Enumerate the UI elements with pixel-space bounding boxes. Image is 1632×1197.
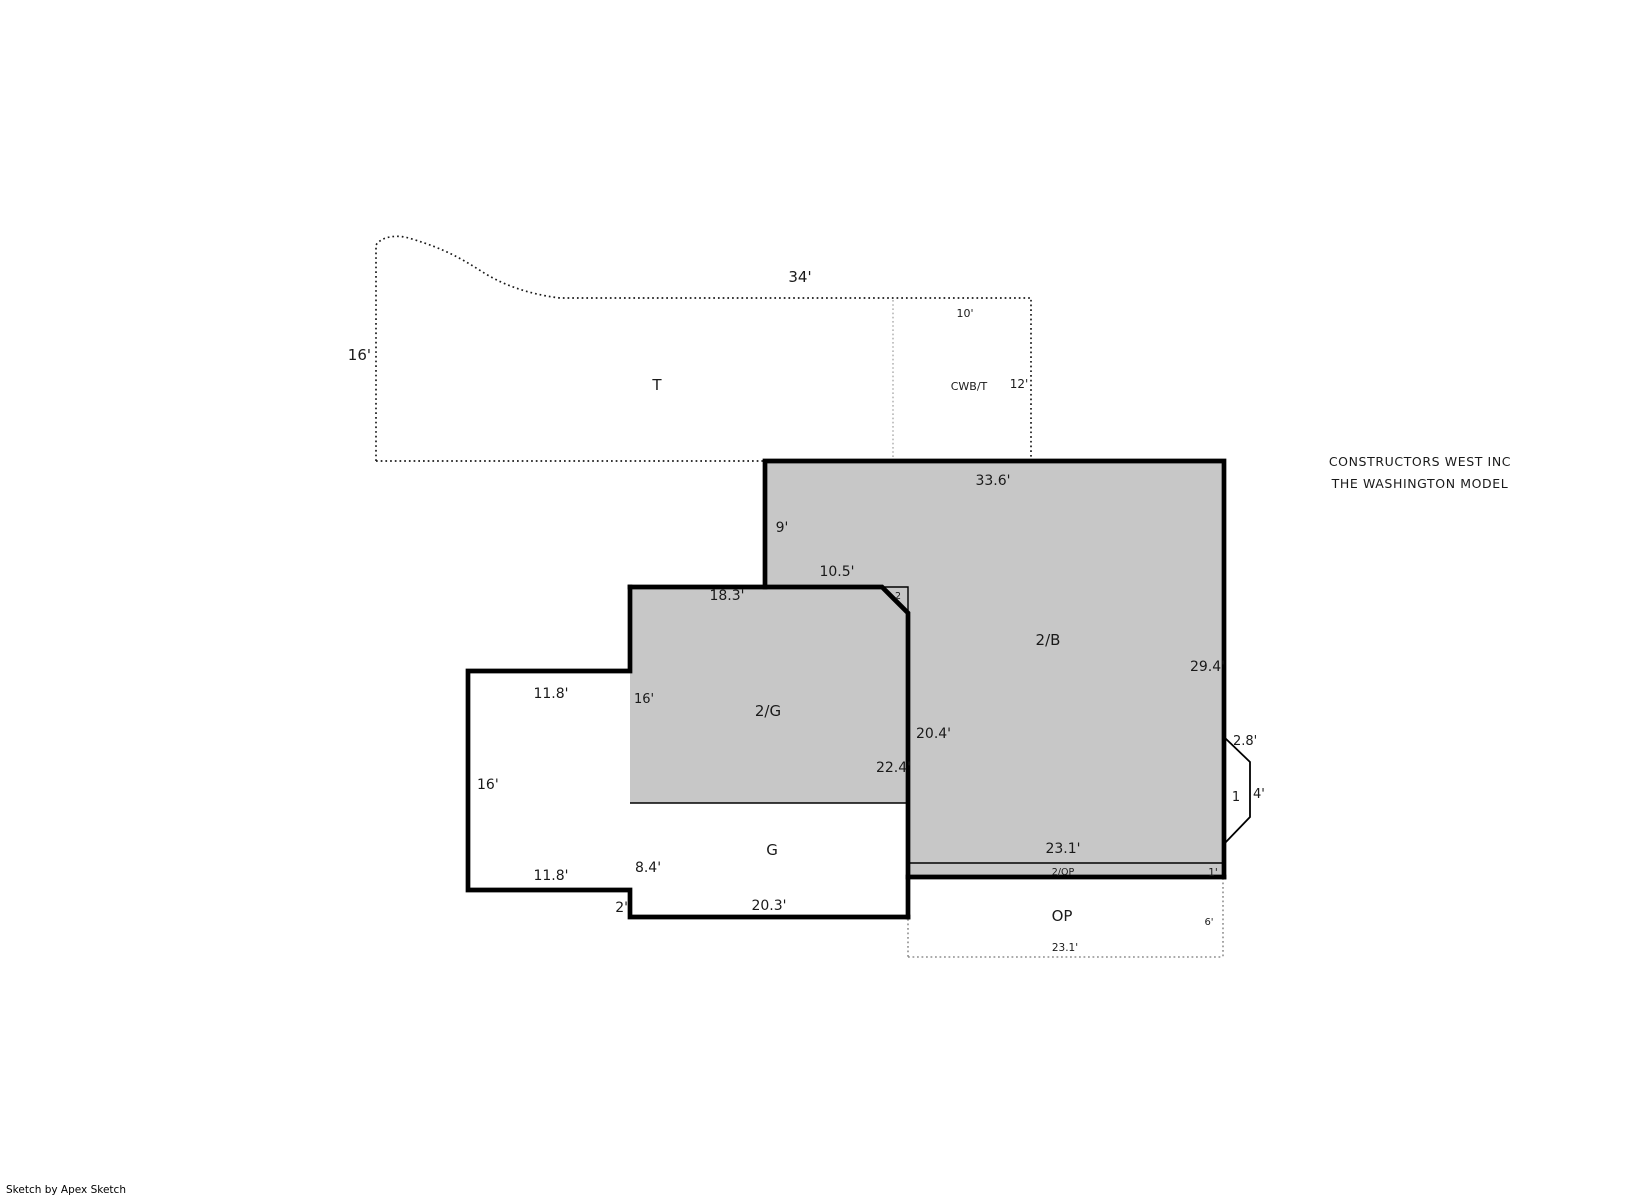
dim-porch-right: 4' bbox=[1253, 787, 1265, 802]
dim-b2-notch-vertical: 9' bbox=[776, 520, 789, 536]
g2-area-fill bbox=[630, 587, 908, 803]
b2-area-label: 2/B bbox=[1036, 631, 1061, 649]
op-area-label: OP bbox=[1052, 907, 1073, 925]
dim-cwbt-right: 12' bbox=[1010, 377, 1029, 391]
dim-g2-top: 18.3' bbox=[709, 588, 744, 604]
corner-triangle-label: 2 bbox=[895, 591, 901, 602]
t-area-label: T bbox=[651, 376, 662, 394]
dim-g-step: 2' bbox=[615, 900, 628, 916]
g-area-label: G bbox=[766, 841, 778, 859]
dim-b2-left: 20.4' bbox=[916, 726, 951, 742]
dim-porch-top: 2.8' bbox=[1233, 734, 1257, 749]
dim-b2-notch-horizontal: 10.5' bbox=[819, 564, 854, 580]
dim-op2-right: 1' bbox=[1208, 867, 1218, 879]
dim-cwbt-top: 10' bbox=[956, 307, 973, 320]
dim-t-left: 16' bbox=[348, 346, 371, 364]
g2-area-label: 2/G bbox=[755, 702, 781, 720]
op2-area-label: 2/OP bbox=[1052, 867, 1075, 878]
t-outline-group bbox=[376, 236, 1031, 461]
dim-g2-height: 16' bbox=[634, 692, 654, 707]
model-name: THE WASHINGTON MODEL bbox=[1331, 476, 1509, 491]
dim-b2-bottom: 23.1' bbox=[1045, 841, 1080, 857]
dim-op-bottom: 23.1' bbox=[1052, 942, 1078, 954]
dim-b2-top: 33.6' bbox=[975, 473, 1010, 489]
area-fills bbox=[630, 461, 1224, 877]
t-labels: 34' 16' T 10' CWB/T 12' bbox=[348, 268, 1029, 394]
cwbt-area-label: CWB/T bbox=[951, 380, 988, 393]
floor-plan-sketch: 34' 16' T 10' CWB/T 12' 33.6' 9' 10.5' 2… bbox=[0, 0, 1632, 1197]
dim-t-top: 34' bbox=[788, 268, 811, 286]
company-title-block: CONSTRUCTORS WEST INC THE WASHINGTON MOD… bbox=[1329, 454, 1511, 491]
dim-g-right: 22.4' bbox=[876, 760, 911, 776]
footer-credit: Sketch by Apex Sketch bbox=[6, 1184, 126, 1196]
porch-labels: 2.8' 1 4' bbox=[1232, 734, 1265, 805]
dim-g-lower-height: 8.4' bbox=[635, 860, 661, 876]
dim-b2-right: 29.4' bbox=[1190, 659, 1225, 675]
dim-g-bottom: 20.3' bbox=[751, 898, 786, 914]
porch-area-label: 1 bbox=[1232, 790, 1240, 805]
company-name: CONSTRUCTORS WEST INC bbox=[1329, 454, 1511, 469]
op-labels: 2/OP 1' OP 6' 23.1' bbox=[1052, 867, 1218, 954]
dim-g-wing-left: 16' bbox=[477, 777, 499, 793]
t-outline bbox=[376, 236, 1031, 461]
dim-op-right: 6' bbox=[1204, 917, 1213, 928]
dim-g-wing-bottom: 11.8' bbox=[533, 868, 568, 884]
sketch-page: 34' 16' T 10' CWB/T 12' 33.6' 9' 10.5' 2… bbox=[0, 0, 1632, 1197]
dim-g-wing-top: 11.8' bbox=[533, 686, 568, 702]
